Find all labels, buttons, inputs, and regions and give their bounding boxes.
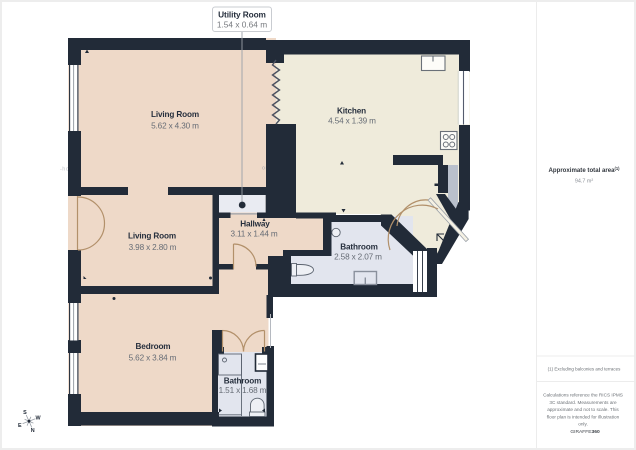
svg-text:3.11 x 1.44 m: 3.11 x 1.44 m [230,229,277,238]
svg-text:only.: only. [578,422,588,427]
svg-text:Living Room: Living Room [151,110,199,119]
svg-text:Approximate total area(1): Approximate total area(1) [548,166,620,174]
svg-text:E: E [18,423,22,429]
svg-text:Kitchen: Kitchen [337,107,366,116]
svg-text:Living Room: Living Room [128,232,176,241]
svg-text:S: S [23,410,27,416]
svg-text:approximate and not to scale.: approximate and not to scale. This [547,407,619,412]
svg-text:5.62 x 4.30 m: 5.62 x 4.30 m [151,121,199,130]
svg-text:1.51 x 1.68 m: 1.51 x 1.68 m [219,386,267,395]
svg-text:N: N [31,428,35,434]
svg-text:Bedroom: Bedroom [136,342,171,351]
svg-text:3.98 x 2.80 m: 3.98 x 2.80 m [129,243,177,252]
svg-text:Bathroom: Bathroom [224,377,261,386]
svg-text:floor plan is intended for ill: floor plan is intended for illustration [547,414,620,419]
svg-text:94.7 m²: 94.7 m² [575,179,593,185]
svg-text:Utility Room: Utility Room [218,9,266,19]
svg-text:W: W [36,416,42,422]
svg-text:3C standard. Measurements are: 3C standard. Measurements are [549,400,617,405]
svg-text:Calculations reference the RIC: Calculations reference the RICS IPMS [543,393,623,398]
svg-text:Bathroom: Bathroom [340,243,377,252]
svg-text:Hallway: Hallway [240,219,270,228]
svg-text:5.62 x 3.84 m: 5.62 x 3.84 m [129,353,177,362]
svg-text:4.54 x 1.39 m: 4.54 x 1.39 m [328,117,376,126]
svg-text:(1) Excluding balconies and te: (1) Excluding balconies and terraces [548,367,622,372]
svg-text:1.54 x 0.64 m: 1.54 x 0.64 m [217,19,267,29]
svg-text:2.58 x 2.07 m: 2.58 x 2.07 m [334,253,382,262]
svg-text:GIRAFFE360: GIRAFFE360 [570,429,600,435]
